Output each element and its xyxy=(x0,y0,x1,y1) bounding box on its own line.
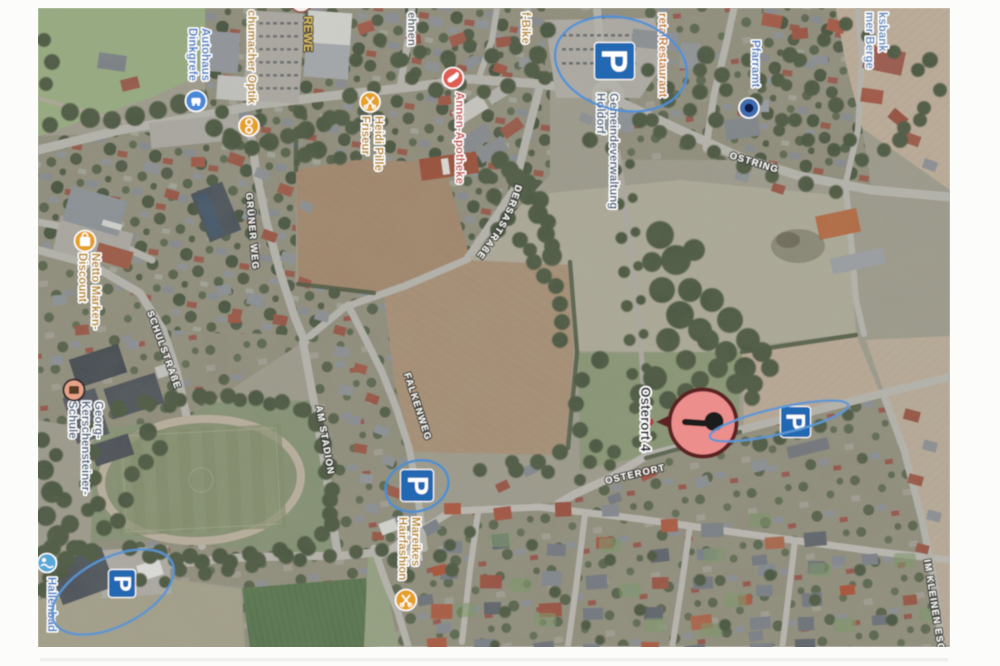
svg-text:ksbank: ksbank xyxy=(876,12,888,52)
svg-text:chumacher Optik: chumacher Optik xyxy=(245,10,257,105)
svg-text:reta Restaurant: reta Restaurant xyxy=(656,13,668,98)
svg-text:f-Bike: f-Bike xyxy=(519,12,531,44)
svg-text:Annen-Apotheke: Annen-Apotheke xyxy=(453,92,465,184)
svg-text:Netto Marken-: Netto Marken- xyxy=(89,253,101,330)
svg-text:Osterort 4: Osterort 4 xyxy=(638,387,653,452)
svg-text:Friseur: Friseur xyxy=(359,116,371,156)
svg-text:Georg-: Georg- xyxy=(92,401,104,439)
svg-text:Holdorf: Holdorf xyxy=(594,93,606,134)
svg-text:Heidi Pille: Heidi Pille xyxy=(372,116,384,171)
svg-text:P: P xyxy=(401,476,433,495)
svg-text:Kerschensteiner-: Kerschensteiner- xyxy=(79,401,91,495)
svg-text:ehnen: ehnen xyxy=(405,12,417,46)
svg-text:REWE: REWE xyxy=(301,16,315,52)
svg-text:Dinkgrefe: Dinkgrefe xyxy=(186,28,198,81)
svg-text:P: P xyxy=(109,575,136,591)
svg-text:Mareikes: Mareikes xyxy=(409,517,421,566)
svg-text:Discount: Discount xyxy=(76,253,88,302)
svg-text:P: P xyxy=(594,49,635,73)
svg-text:Pfarramt: Pfarramt xyxy=(749,40,761,87)
svg-text:Hairfashion: Hairfashion xyxy=(396,517,408,580)
svg-text:Schule: Schule xyxy=(66,401,78,439)
svg-text:mer Berge: mer Berge xyxy=(863,12,875,69)
svg-text:Autohaus: Autohaus xyxy=(199,28,211,81)
